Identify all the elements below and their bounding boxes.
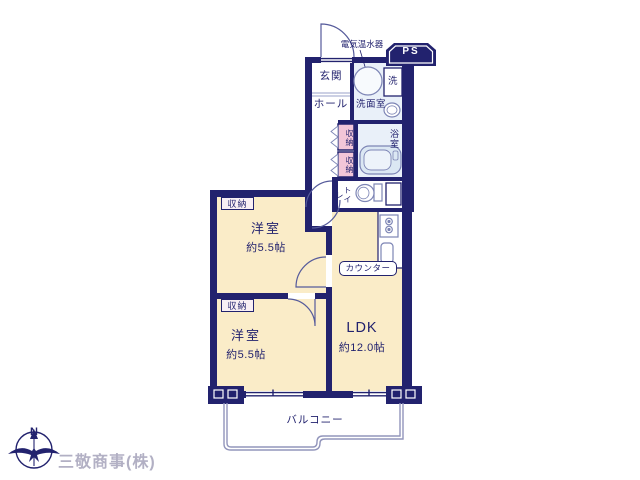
ldk-name: LDK [322,320,402,337]
ps-label: PS [392,46,430,57]
counter-label: カウンター [339,261,397,276]
wall-bedroom-ldk-a [326,226,332,255]
hall-closet-1-label: 収納 [340,127,353,148]
balcony-label: バルコニー [275,414,355,426]
water-heater-icon [354,67,382,95]
wall-bottom-b [303,391,353,398]
stove-burner-2-dot [388,229,390,231]
sink-icon [381,243,393,263]
bedroom2-name: 洋室 [206,329,286,344]
bathroom-label: 浴室 [385,126,398,152]
hall-closet-2-label: 収納 [340,154,353,175]
washroom-label: 洗面室 [349,100,393,111]
toilet-label: トイレ [340,182,351,208]
pillar-right [386,386,422,404]
wall-top-a [305,57,321,63]
bathtub-inner [364,150,391,170]
floor-plan: 玄関 ホール 洗面室 洗 収納 収納 浴室 トイレ 収納 収納 洋室 約5.5帖… [0,0,640,480]
toilet-tank [374,184,382,201]
wall-right-upper [402,63,414,212]
stove-burner-1-dot [388,221,390,223]
wall-entrance-washroom [350,63,354,122]
balcony-outer-line [224,403,403,450]
water-heater-label: 電気温水器 [334,38,390,50]
entrance-label: 玄関 [312,70,350,82]
compass-north-label: N [27,426,41,438]
ldk-area: 約12.0帖 [322,342,402,355]
bedroom1-area: 約5.5帖 [226,242,306,255]
bedroom1-name: 洋室 [226,222,306,237]
bedroom1-closet-label: 収納 [221,197,254,210]
balcony-outline [224,403,403,450]
wall-toilet-bottom [332,208,402,212]
wall-bedroom1-top [210,190,312,197]
wall-bedroom-divider-b [315,293,332,299]
company-watermark: 三敬商事(株) [58,448,156,472]
bedroom2-area: 約5.5帖 [206,349,286,362]
pillar-left [208,386,244,404]
wall-main-right [402,212,412,398]
bedroom2-closet-label: 収納 [221,299,254,312]
toilet-cabinet [386,183,401,205]
washer-label: 洗 [386,77,400,88]
